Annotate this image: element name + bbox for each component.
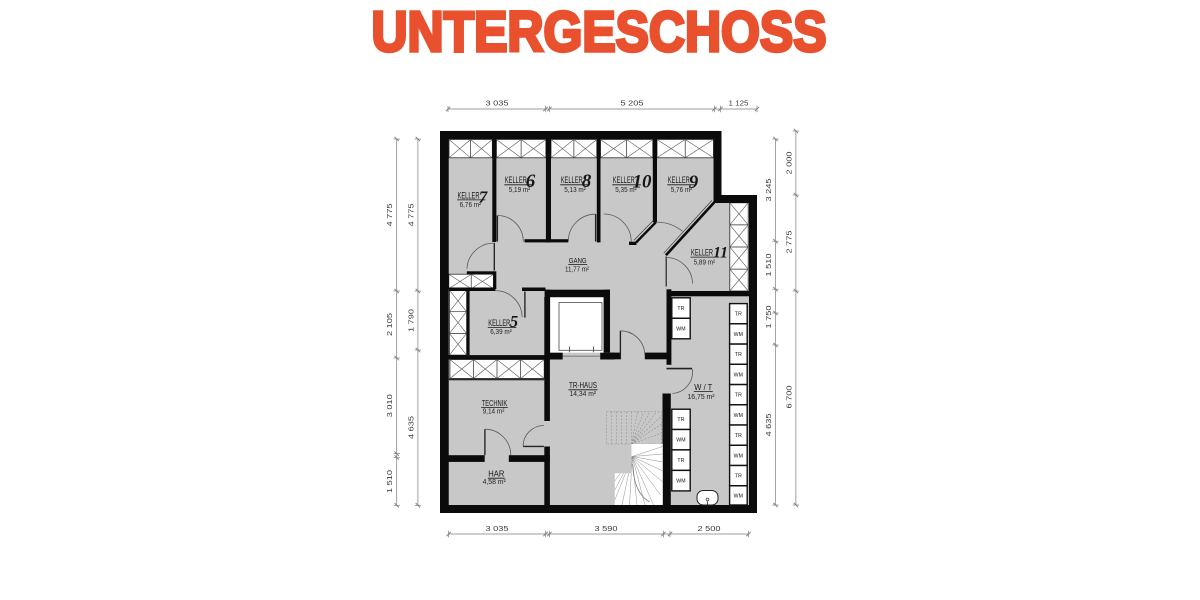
svg-text:6,76 m²: 6,76 m² [460, 202, 482, 209]
svg-text:1 790: 1 790 [406, 309, 415, 332]
svg-text:TECHNIK: TECHNIK [482, 398, 508, 408]
svg-text:KELLER: KELLER [458, 190, 480, 200]
svg-text:4,58 m²: 4,58 m² [483, 479, 507, 486]
svg-text:2 500: 2 500 [698, 524, 721, 533]
svg-text:11,77 m²: 11,77 m² [565, 266, 590, 273]
svg-text:KELLER: KELLER [668, 175, 690, 185]
svg-text:KELLER: KELLER [561, 175, 583, 185]
svg-text:6 700: 6 700 [785, 386, 794, 409]
svg-text:KELLER: KELLER [505, 175, 527, 185]
svg-text:5 205: 5 205 [621, 99, 644, 108]
svg-text:5,19 m²: 5,19 m² [509, 187, 531, 194]
svg-text:HAR: HAR [488, 469, 504, 479]
svg-text:4 635: 4 635 [764, 414, 773, 437]
svg-text:TR: TR [677, 306, 684, 312]
svg-text:2 000: 2 000 [785, 152, 794, 175]
svg-text:1 510: 1 510 [385, 470, 394, 493]
svg-text:1 750: 1 750 [764, 306, 773, 329]
svg-text:11: 11 [713, 245, 728, 262]
svg-text:TR: TR [677, 458, 684, 464]
svg-text:WM: WM [734, 493, 744, 499]
svg-text:TR: TR [677, 417, 684, 423]
svg-text:3 590: 3 590 [595, 524, 618, 533]
svg-text:5,89 m²: 5,89 m² [694, 260, 716, 267]
svg-text:KELLER: KELLER [691, 248, 713, 258]
svg-text:6,39 m²: 6,39 m² [490, 329, 512, 336]
svg-text:TR-HAUS: TR-HAUS [569, 381, 597, 390]
svg-text:WM: WM [734, 453, 744, 459]
svg-text:4 775: 4 775 [406, 204, 415, 227]
svg-text:WM: WM [676, 438, 686, 444]
svg-text:TR: TR [735, 393, 742, 399]
svg-text:16,75 m²: 16,75 m² [688, 394, 716, 401]
svg-text:TR: TR [735, 352, 742, 358]
svg-text:WM: WM [734, 332, 744, 338]
svg-text:TR: TR [735, 312, 742, 318]
svg-text:3 035: 3 035 [486, 524, 509, 533]
svg-text:3 245: 3 245 [764, 179, 773, 202]
svg-text:1 510: 1 510 [764, 254, 773, 277]
svg-text:UNTERGESCHOSS: UNTERGESCHOSS [372, 0, 827, 64]
svg-text:3 035: 3 035 [486, 99, 509, 108]
svg-text:GANG: GANG [569, 256, 587, 265]
svg-text:2 105: 2 105 [385, 313, 394, 336]
svg-text:2 775: 2 775 [785, 231, 794, 254]
svg-text:WM: WM [676, 479, 686, 485]
svg-text:14,34 m²: 14,34 m² [570, 391, 597, 398]
svg-text:WM: WM [734, 372, 744, 378]
svg-text:TR: TR [735, 433, 742, 439]
svg-text:W / T: W / T [694, 383, 712, 392]
svg-text:WM: WM [734, 413, 744, 419]
svg-text:TR: TR [735, 474, 742, 480]
svg-text:4 635: 4 635 [406, 416, 415, 439]
svg-text:KELLER: KELLER [488, 318, 510, 328]
svg-text:9,14 m²: 9,14 m² [483, 408, 505, 415]
svg-text:5,76 m²: 5,76 m² [671, 187, 693, 194]
svg-text:5,13 m²: 5,13 m² [564, 187, 586, 194]
svg-text:3 010: 3 010 [385, 394, 394, 417]
svg-text:4 775: 4 775 [385, 204, 394, 227]
svg-text:1 125: 1 125 [729, 99, 749, 108]
svg-text:WM: WM [676, 326, 686, 332]
svg-text:5,35 m²: 5,35 m² [615, 187, 637, 194]
